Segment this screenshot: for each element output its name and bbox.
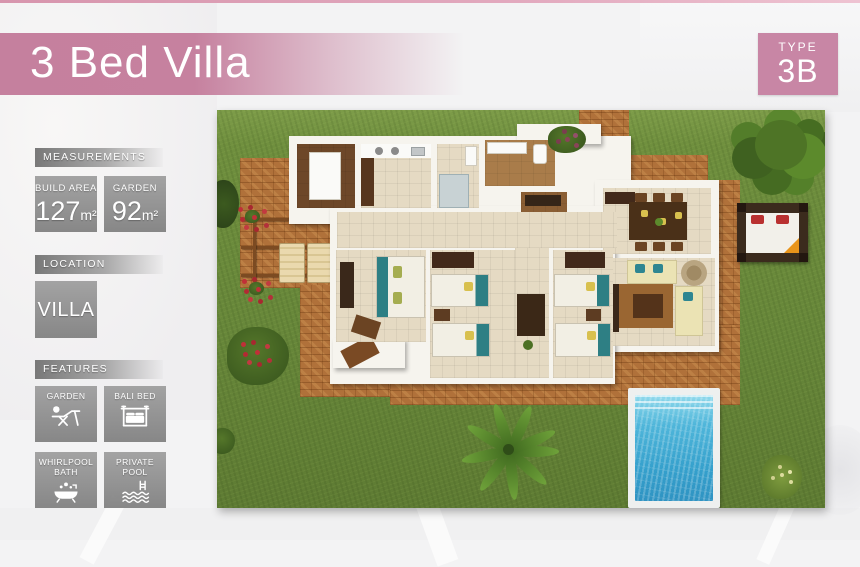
feature-whirlpool-bath: WHIRLPOOL BATH: [35, 452, 97, 508]
bali-bed-post: [737, 253, 746, 262]
flower-pot: [249, 282, 264, 295]
kitchen-sink: [411, 147, 425, 156]
corridor: [337, 212, 617, 248]
private-pool-icon: [104, 479, 166, 504]
location-value: VILLA: [35, 299, 97, 322]
bali-bed-pillow: [776, 215, 789, 224]
bali-bed: [737, 203, 808, 262]
palm-trunk: [503, 444, 514, 455]
bathroom1-sink: [465, 146, 477, 166]
feature-private-pool: PRIVATE POOL: [104, 452, 166, 508]
twin2-bed: [555, 323, 611, 357]
hallway-console: [517, 294, 545, 336]
bali-bed-icon: [104, 403, 166, 431]
build-area-stat: BUILD AREA 127m²: [35, 176, 97, 232]
twin1-nightstand: [434, 309, 450, 321]
build-area-unit: m²: [80, 207, 96, 223]
type-badge-label: TYPE: [758, 40, 838, 54]
living-coffee-table: [633, 294, 663, 318]
floor-plan: [217, 110, 825, 508]
feature-whirlpool-bath-label: WHIRLPOOL BATH: [35, 457, 97, 477]
dining-chair: [671, 193, 683, 202]
garden-area-value-row: 92m²: [104, 196, 166, 227]
dining-placemats: [641, 210, 648, 217]
feature-private-pool-label: PRIVATE POOL: [104, 457, 166, 477]
location-value-box: VILLA: [35, 281, 97, 338]
sofa-cushion: [683, 292, 693, 301]
feature-bali-bed: BALI BED: [104, 386, 166, 442]
bali-bed-post: [799, 253, 808, 262]
dining-chair: [653, 193, 665, 202]
twin2-bed: [554, 274, 610, 307]
build-area-value-row: 127m²: [35, 196, 97, 227]
sun-lounger: [279, 243, 305, 283]
feature-garden: GARDEN: [35, 386, 97, 442]
master-bed: [376, 256, 425, 318]
bali-bed-post: [737, 203, 746, 212]
tree: [755, 120, 807, 170]
kitchen-cabinet: [361, 158, 374, 206]
type-badge-value: 3B: [758, 54, 838, 88]
whirlpool-bath-icon: [35, 479, 97, 504]
bali-bed-towel: [784, 238, 799, 253]
build-area-value: 127: [35, 196, 80, 226]
shrub-near-pool: [762, 455, 802, 499]
kitchen-stove-burners: [375, 147, 383, 155]
flower-bush-left: [227, 327, 289, 385]
bathroom2-double-sink: [487, 142, 527, 154]
swimming-pool: [635, 395, 713, 501]
top-accent-strip: [0, 0, 860, 3]
palm-leaves-edge: [217, 180, 239, 228]
sofa-cushion: [653, 264, 663, 273]
measurements-heading: MEASUREMENTS: [35, 148, 163, 167]
hallway-plant: [523, 340, 533, 350]
type-badge: TYPE 3B: [758, 33, 838, 95]
bathroom2-toilet: [533, 144, 547, 164]
dining-chair: [635, 193, 647, 202]
title-banner: 3 Bed Villa: [0, 33, 540, 95]
garden-lounger-icon: [35, 403, 97, 431]
sofa-cushion: [635, 264, 645, 273]
twin1-wardrobe: [432, 252, 474, 268]
garden-area-stat: GARDEN 92m²: [104, 176, 166, 232]
twin2-wardrobe: [565, 252, 605, 268]
villa-brochure-page: { "header": { "title": "3 Bed Villa" }, …: [0, 0, 860, 540]
twin1-bed: [431, 274, 489, 307]
master-tv-unit: [340, 262, 354, 308]
location-heading: LOCATION: [35, 255, 163, 274]
garden-area-label: GARDEN: [104, 183, 166, 194]
build-area-label: BUILD AREA: [35, 183, 97, 194]
dining-chair: [653, 242, 665, 251]
garden-area-value: 92: [112, 196, 142, 226]
palm-tree: [455, 398, 559, 502]
utility-door: [309, 152, 341, 200]
bali-bed-post: [799, 203, 808, 212]
shower-vanity: [525, 195, 561, 206]
room-twin-bedroom-2: [553, 250, 613, 378]
garden-area-unit: m²: [142, 207, 158, 223]
twin1-bed: [432, 323, 490, 357]
feature-garden-label: GARDEN: [35, 391, 97, 401]
living-wicker-chair: [681, 260, 707, 286]
pool-steps: [635, 395, 713, 412]
feature-bali-bed-label: BALI BED: [104, 391, 166, 401]
dining-chair: [671, 242, 683, 251]
page-title: 3 Bed Villa: [0, 33, 540, 93]
grass-tuft: [217, 428, 235, 454]
dining-chair: [635, 242, 647, 251]
dining-centerpiece: [655, 218, 663, 226]
features-heading: FEATURES: [35, 360, 163, 379]
bathroom1-shower: [439, 174, 469, 208]
twin2-nightstand: [586, 309, 601, 321]
bali-bed-pillow: [751, 215, 764, 224]
